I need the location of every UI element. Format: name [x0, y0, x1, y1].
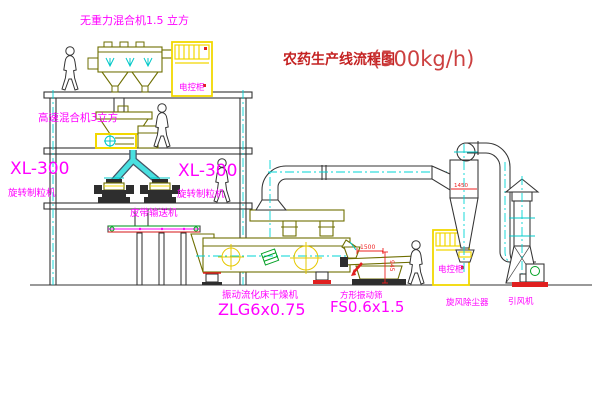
belt-conveyor: [108, 226, 200, 285]
fluid-bed-dryer: [191, 200, 358, 285]
conveyor-legs: [137, 233, 186, 285]
label-cyclone: 旋风除尘器: [446, 297, 489, 308]
granulator-left: [94, 178, 134, 203]
label-dryer-model: ZLG6x0.75: [218, 300, 306, 319]
vibrating-sieve: 1500 945: [340, 242, 420, 285]
process-flow-drawing: 电控柜: [0, 0, 600, 403]
label-granulator-type-left: 旋转制粒机: [8, 187, 56, 199]
label-granulator-model-left: XL-300: [10, 159, 69, 179]
dim-sieve-height: 945: [388, 260, 395, 272]
person-figure: [62, 47, 78, 90]
page-title-capacity: (500kg/h): [372, 47, 474, 71]
control-cabinet-1: 电控柜: [172, 42, 212, 96]
label-high-speed-mixer: 高速混合机3立方: [38, 111, 118, 124]
cabinet2-label: 电控柜: [438, 264, 464, 275]
granulator-right: [140, 178, 180, 203]
y-chute: [114, 150, 158, 181]
person-figure: [408, 241, 424, 284]
cabinet1-label: 电控柜: [179, 82, 205, 93]
label-granulator-type-center: 旋转制粒机: [177, 188, 225, 200]
label-top-mixer: 无重力混合机1.5 立方: [80, 13, 189, 27]
dim-sieve-length: 1500: [360, 244, 375, 251]
person-figure: [154, 104, 170, 147]
gravity-free-mixer: [88, 42, 180, 112]
dim-cyclone: 1450: [454, 183, 468, 189]
label-belt-conveyor: 皮带输送机: [130, 207, 178, 219]
label-fan: 引风机: [508, 296, 534, 307]
label-sieve-model: FS0.6x1.5: [330, 298, 404, 316]
label-granulator-model-center: XL-300: [178, 161, 237, 181]
